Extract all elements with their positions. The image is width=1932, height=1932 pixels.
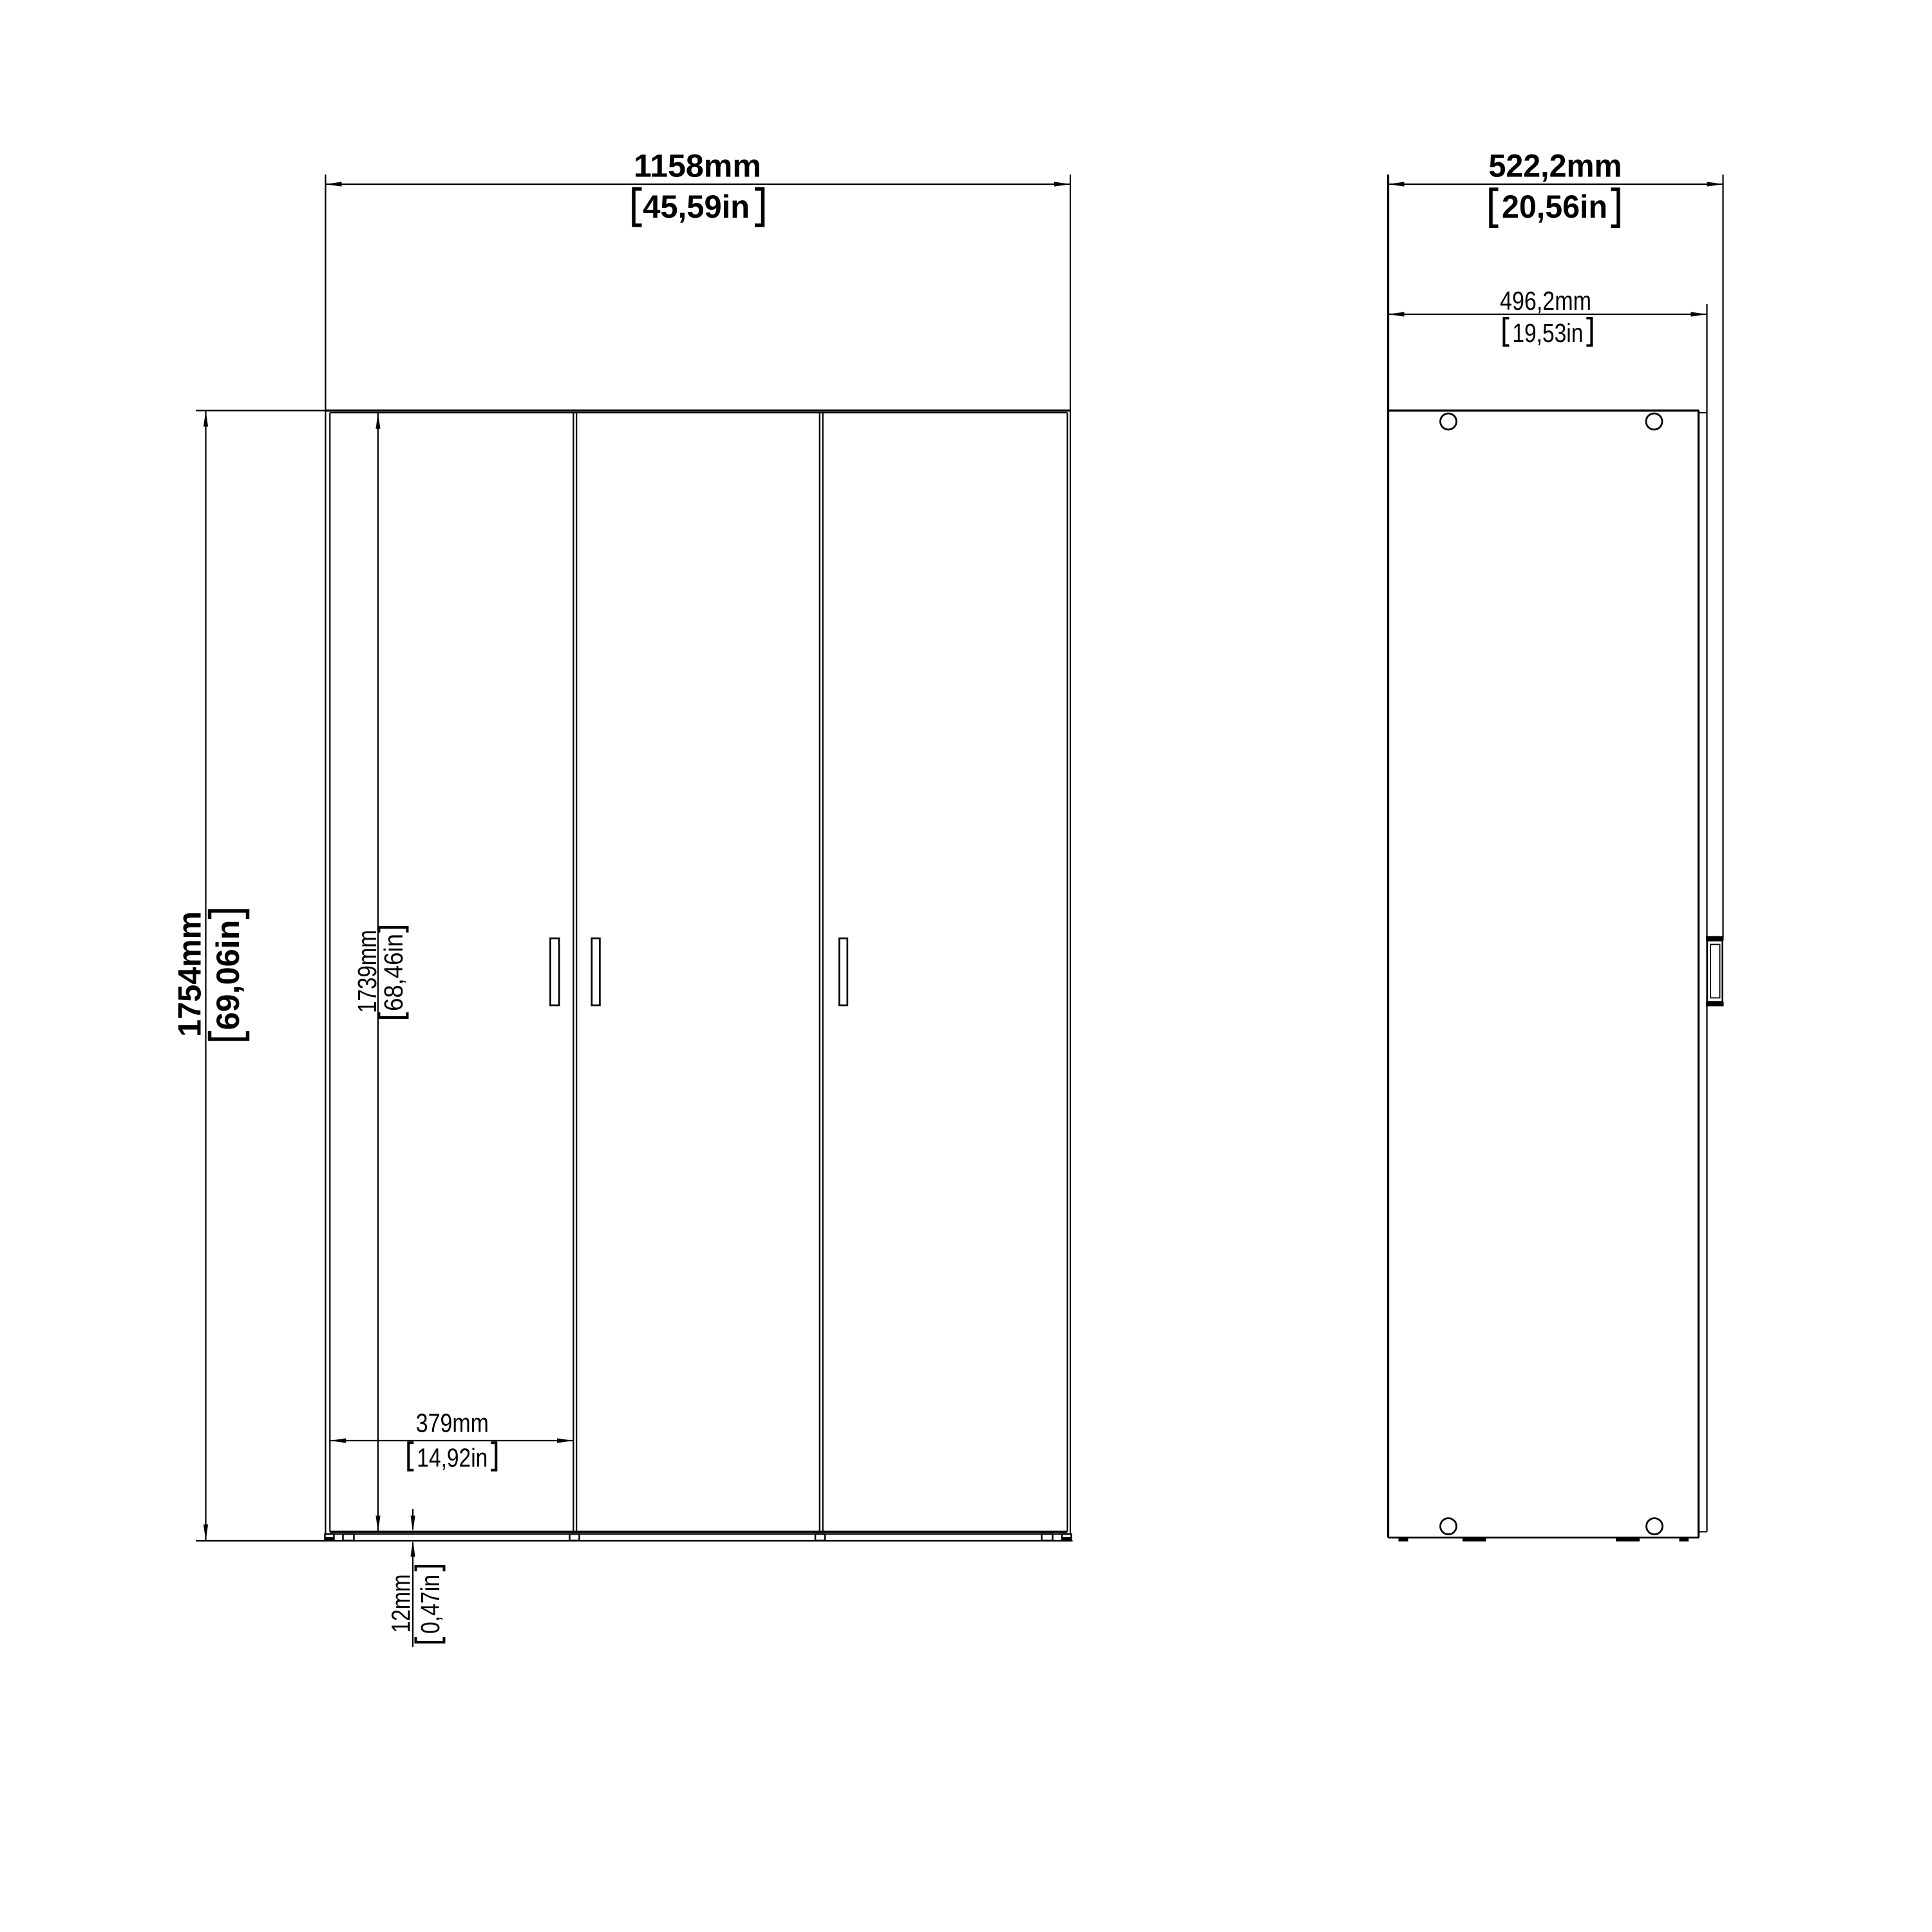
svg-text:19,53in: 19,53in bbox=[1512, 318, 1583, 348]
svg-text:1158mm: 1158mm bbox=[634, 148, 761, 184]
svg-text:69,06in: 69,06in bbox=[210, 920, 246, 1030]
svg-text:45,59in: 45,59in bbox=[643, 189, 750, 225]
svg-text:1754mm: 1754mm bbox=[172, 911, 208, 1037]
svg-text:68,46in: 68,46in bbox=[379, 934, 408, 1011]
svg-text:379mm: 379mm bbox=[416, 1408, 489, 1438]
svg-text:12mm: 12mm bbox=[386, 1575, 415, 1633]
svg-text:20,56in: 20,56in bbox=[1502, 189, 1607, 225]
svg-text:1739mm: 1739mm bbox=[352, 930, 382, 1013]
svg-text:496,2mm: 496,2mm bbox=[1500, 286, 1591, 316]
svg-text:0,47in: 0,47in bbox=[415, 1575, 445, 1634]
svg-text:14,92in: 14,92in bbox=[417, 1443, 488, 1472]
svg-text:522,2mm: 522,2mm bbox=[1489, 148, 1622, 184]
